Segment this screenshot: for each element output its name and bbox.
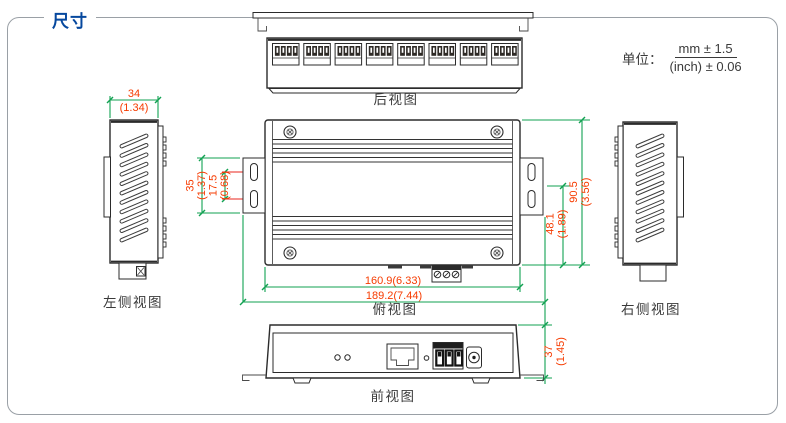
terminal-pin-slot bbox=[476, 48, 478, 53]
rail-tooth bbox=[163, 137, 166, 142]
terminal-block bbox=[460, 44, 487, 66]
right-view-label: 右侧视图 bbox=[621, 302, 681, 317]
dim-front-height-mm: 37 bbox=[543, 345, 555, 357]
front-view: 前视图 bbox=[243, 325, 544, 404]
rail-tooth bbox=[615, 145, 618, 150]
terminal-block bbox=[273, 44, 300, 66]
reset-hole bbox=[424, 356, 429, 361]
rail-tooth bbox=[615, 137, 618, 142]
terminal-pin-slot bbox=[502, 48, 504, 53]
rail-tooth bbox=[163, 145, 166, 150]
rail-tooth bbox=[163, 153, 166, 158]
dim-body-depth-mm: 90.5 bbox=[568, 181, 580, 202]
terminal-pin-slot bbox=[320, 48, 322, 53]
dim-side-width-inch: (1.34) bbox=[120, 102, 149, 114]
terminal-pin-slot bbox=[277, 48, 279, 53]
top-view-body bbox=[265, 120, 520, 265]
rail-tooth bbox=[615, 218, 618, 223]
rear-mount-plate bbox=[253, 13, 533, 19]
terminal-pin-slot bbox=[445, 48, 447, 53]
dim-ear-height-inch: (1.37) bbox=[196, 171, 208, 200]
mount-slot bbox=[251, 191, 258, 208]
terminal-block bbox=[398, 44, 425, 66]
terminal-pin-slot bbox=[370, 48, 372, 53]
terminal-pin-slot bbox=[482, 48, 484, 53]
terminal-pin-slot bbox=[295, 48, 297, 53]
terminal-pin-slot bbox=[376, 48, 378, 53]
terminal-pin-slot bbox=[439, 48, 441, 53]
right-view-connector bbox=[640, 265, 666, 281]
terminal-pin-slot bbox=[408, 48, 410, 53]
dc-jack-pin bbox=[472, 356, 475, 359]
right-view-rail-profile bbox=[618, 126, 623, 258]
terminal-pin-slot bbox=[382, 48, 384, 53]
rail-tooth bbox=[615, 242, 618, 247]
top-view-foot bbox=[462, 265, 473, 269]
right-view-side-tab bbox=[677, 157, 684, 217]
screw bbox=[491, 126, 503, 138]
terminal-pin-slot bbox=[470, 48, 472, 53]
dim-body-width: 160.9(6.33) bbox=[365, 275, 421, 287]
rail-tooth bbox=[163, 218, 166, 223]
front-terminal-pin-clamp bbox=[448, 352, 451, 357]
dim-slot-edge-inch: (1.89) bbox=[557, 210, 569, 239]
terminal-block bbox=[366, 44, 393, 66]
dim-side-width-mm: 34 bbox=[128, 88, 140, 100]
rail-tooth bbox=[615, 161, 618, 166]
terminal-block bbox=[335, 44, 362, 66]
terminal-pin-slot bbox=[289, 48, 291, 53]
terminal-pin-slot bbox=[433, 48, 435, 53]
top-view-foot bbox=[420, 265, 431, 269]
terminal-pin-slot bbox=[314, 48, 316, 53]
terminal-pin-slot bbox=[345, 48, 347, 53]
dim-slot-pitch-mm: 17.5 bbox=[208, 175, 220, 196]
terminal-pin-slot bbox=[402, 48, 404, 53]
top-view-foot bbox=[388, 265, 402, 269]
front-terminal-pins bbox=[436, 351, 462, 366]
front-view-left-wing bbox=[243, 375, 267, 381]
screw bbox=[491, 247, 503, 259]
left-view-label: 左侧视图 bbox=[103, 295, 163, 310]
terminal-pin-slot bbox=[414, 48, 416, 53]
left-view-side-tab bbox=[104, 157, 111, 217]
dim-ear-height-mm: 35 bbox=[185, 179, 197, 191]
terminal-block bbox=[304, 44, 331, 66]
rear-hook-right bbox=[520, 18, 529, 31]
front-view-label: 前视图 bbox=[371, 388, 416, 404]
top-view-terminal-bar bbox=[433, 266, 461, 271]
dim-slot-pitch-inch: (0.68) bbox=[219, 171, 231, 200]
rear-hook-left bbox=[258, 18, 267, 31]
mount-slot bbox=[251, 164, 258, 181]
terminal-pin-slot bbox=[514, 48, 516, 53]
rear-view: 后视图 bbox=[253, 13, 533, 108]
front-terminal-pin-clamp bbox=[457, 352, 460, 357]
front-terminal-pin-clamp bbox=[438, 352, 441, 357]
dimension-drawing-panel: 尺寸 单位： mm ± 1.5 (inch) ± 0.06 后视图 bbox=[0, 0, 786, 423]
led-indicator bbox=[345, 355, 350, 360]
rail-tooth bbox=[163, 226, 166, 231]
terminal-pin-slot bbox=[451, 48, 453, 53]
terminal-pin-slot bbox=[339, 48, 341, 53]
front-terminal-bar bbox=[434, 343, 463, 349]
left-view-rail-profile bbox=[158, 126, 163, 258]
rail-tooth bbox=[163, 242, 166, 247]
led-indicator bbox=[335, 355, 340, 360]
terminal-pin-slot bbox=[308, 48, 310, 53]
rail-tooth bbox=[615, 226, 618, 231]
rail-tooth bbox=[615, 234, 618, 239]
rail-tooth bbox=[163, 161, 166, 166]
top-view-terminal-screws bbox=[434, 271, 459, 278]
rear-view-label: 后视图 bbox=[374, 92, 419, 107]
front-view-foot bbox=[293, 378, 311, 383]
left-side-view: 左侧视图 bbox=[103, 120, 166, 310]
dim-body-depth-inch: (3.56) bbox=[580, 178, 592, 207]
rail-tooth bbox=[615, 153, 618, 158]
screw bbox=[284, 247, 296, 259]
terminal-block bbox=[429, 44, 456, 66]
right-view-body bbox=[623, 122, 677, 265]
technical-drawing: 后视图 左侧视图 bbox=[0, 0, 786, 423]
screw bbox=[284, 126, 296, 138]
terminal-pin-slot bbox=[420, 48, 422, 53]
dim-overall-width: 189.2(7.44) bbox=[366, 290, 422, 302]
dim-slot-edge-mm: 48.1 bbox=[545, 213, 557, 234]
terminal-pin-slot bbox=[351, 48, 353, 53]
rail-tooth bbox=[163, 234, 166, 239]
terminal-block bbox=[492, 44, 518, 66]
right-side-view: 右侧视图 bbox=[615, 122, 684, 317]
top-view-label: 俯视图 bbox=[373, 302, 418, 317]
terminal-pin-slot bbox=[326, 48, 328, 53]
terminal-pin-slot bbox=[357, 48, 359, 53]
terminal-pin-slot bbox=[496, 48, 498, 53]
front-view-foot bbox=[472, 378, 490, 383]
dim-front-height-inch: (1.45) bbox=[555, 337, 567, 366]
terminal-pin-slot bbox=[464, 48, 466, 53]
terminal-pin-slot bbox=[283, 48, 285, 53]
terminal-pin-slot bbox=[508, 48, 510, 53]
terminal-pin-slot bbox=[388, 48, 390, 53]
mount-slot bbox=[528, 191, 535, 208]
mount-slot bbox=[528, 164, 535, 181]
